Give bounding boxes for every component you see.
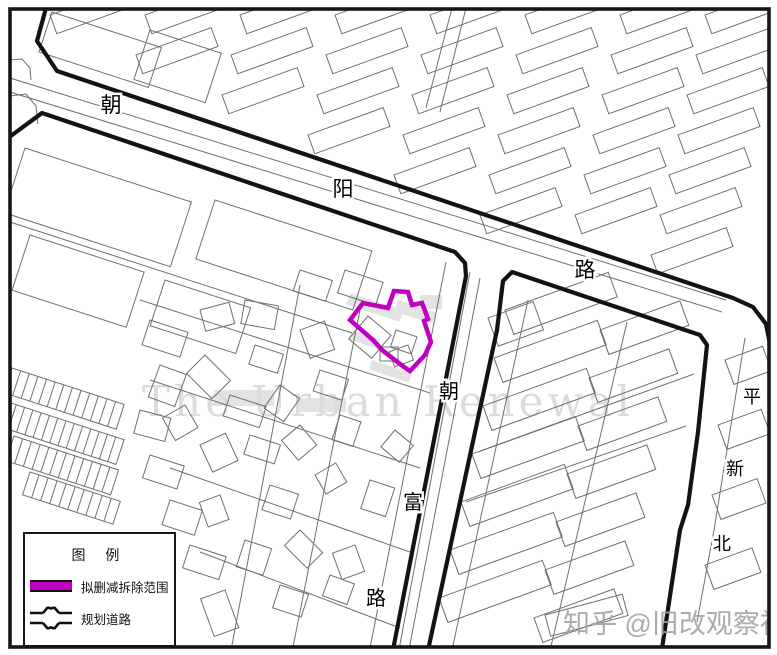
building-outline — [326, 28, 408, 74]
building-outline — [593, 108, 675, 154]
building-outline — [412, 68, 494, 114]
building-outline — [361, 480, 395, 517]
building-outline — [494, 320, 606, 382]
building-outline — [240, 0, 322, 34]
building-outline — [725, 346, 771, 384]
building-outline — [162, 500, 202, 535]
building-outline — [516, 28, 598, 74]
building-outline — [200, 302, 235, 331]
road-label-pingxinbei-road: 平 — [743, 387, 761, 407]
building-outline — [525, 0, 607, 34]
legend-title: 图 例 — [25, 545, 174, 565]
lane-line — [292, 300, 362, 652]
building-outline — [489, 148, 571, 194]
road-label-chaoyang-road: 朝 — [101, 94, 122, 117]
building-outline — [244, 435, 281, 464]
lane-line — [10, 222, 352, 333]
planned-road-swatch — [30, 606, 72, 630]
building-outline — [284, 530, 322, 568]
building-outline — [584, 148, 666, 194]
building-outline — [660, 188, 742, 234]
building-outline — [134, 30, 221, 103]
building-outline — [678, 108, 760, 154]
building-outline — [12, 235, 144, 327]
building-outline — [315, 463, 347, 494]
road-label-pingxinbei-road: 新 — [726, 459, 744, 479]
road-label-chaoyang-road: 阳 — [333, 178, 354, 201]
building-outline — [381, 430, 414, 462]
legend-item-label: 规划道路 — [81, 609, 131, 628]
lane-line — [466, 426, 686, 502]
demolition-line-swatch — [30, 580, 72, 592]
planned-road-line — [427, 272, 707, 655]
lane-line — [440, 8, 466, 112]
lane-line — [10, 92, 722, 312]
building-outline — [439, 560, 551, 622]
building-outline — [308, 108, 390, 154]
legend-panel: 图 例 拟删减拆除范围 规划道路 — [23, 532, 176, 647]
building-outline — [332, 545, 364, 580]
building-outline — [718, 409, 770, 449]
legend-item-demolition: 拟删减拆除范围 — [30, 575, 174, 597]
building-outline — [712, 479, 766, 520]
building-outline — [222, 68, 304, 114]
building-outline — [575, 188, 657, 234]
building-outline — [620, 0, 702, 34]
building-outline — [145, 0, 227, 34]
building-outline — [249, 345, 284, 373]
building-outline — [183, 545, 227, 580]
building-outline — [403, 108, 485, 154]
building-outline — [421, 28, 503, 74]
building-outline — [602, 68, 684, 114]
building-outline — [498, 108, 580, 154]
road-label-chaofu-road: 路 — [366, 587, 386, 610]
building-outline — [201, 590, 239, 636]
building-outline — [241, 300, 279, 330]
lane-line — [398, 272, 470, 655]
building-outline — [687, 68, 769, 114]
building-outline — [142, 320, 188, 357]
road-label-chaoyang-road: 路 — [575, 259, 596, 282]
building-outline — [705, 548, 761, 590]
building-outline — [651, 228, 733, 274]
building-outline — [611, 28, 693, 74]
road-label-chaofu-road: 朝 — [439, 380, 459, 403]
building-outline — [705, 0, 777, 34]
lane-line — [426, 8, 452, 108]
building-outline — [335, 0, 417, 34]
planning-map-page: The Urban Renewal朝阳路朝富路平新北知乎 @旧改观察社 图 例 … — [0, 0, 777, 655]
building-outline — [231, 28, 313, 74]
building-outline — [150, 280, 250, 353]
building-outline — [556, 493, 645, 547]
building-outline — [696, 28, 777, 74]
building-outline — [273, 585, 309, 617]
legend-item-planned-road: 规划道路 — [30, 607, 174, 629]
building-outline — [450, 512, 562, 574]
lane-line — [232, 285, 300, 645]
building-outline — [39, 12, 161, 87]
road-label-chaofu-road: 富 — [403, 491, 423, 514]
building-outline — [143, 455, 185, 489]
road-label-pingxinbei-road: 北 — [713, 534, 731, 554]
building-outline — [545, 541, 634, 595]
building-outline — [200, 433, 238, 472]
legend-item-label: 拟删减拆除范围 — [81, 577, 169, 596]
rowhouse-strip — [6, 436, 119, 495]
building-outline — [282, 425, 317, 460]
building-outline — [50, 0, 132, 34]
building-outline — [507, 68, 589, 114]
demolition-boundary — [350, 291, 431, 371]
building-outline — [199, 495, 229, 527]
building-outline — [236, 540, 271, 575]
building-outline — [317, 68, 399, 114]
building-outline — [4, 148, 191, 267]
building-outline — [461, 464, 573, 526]
corner-watermark: 知乎 @旧改观察社 — [563, 609, 777, 639]
building-outline — [430, 0, 512, 34]
lane-line — [10, 59, 31, 80]
building-outline — [567, 445, 656, 499]
building-outline — [669, 148, 751, 194]
